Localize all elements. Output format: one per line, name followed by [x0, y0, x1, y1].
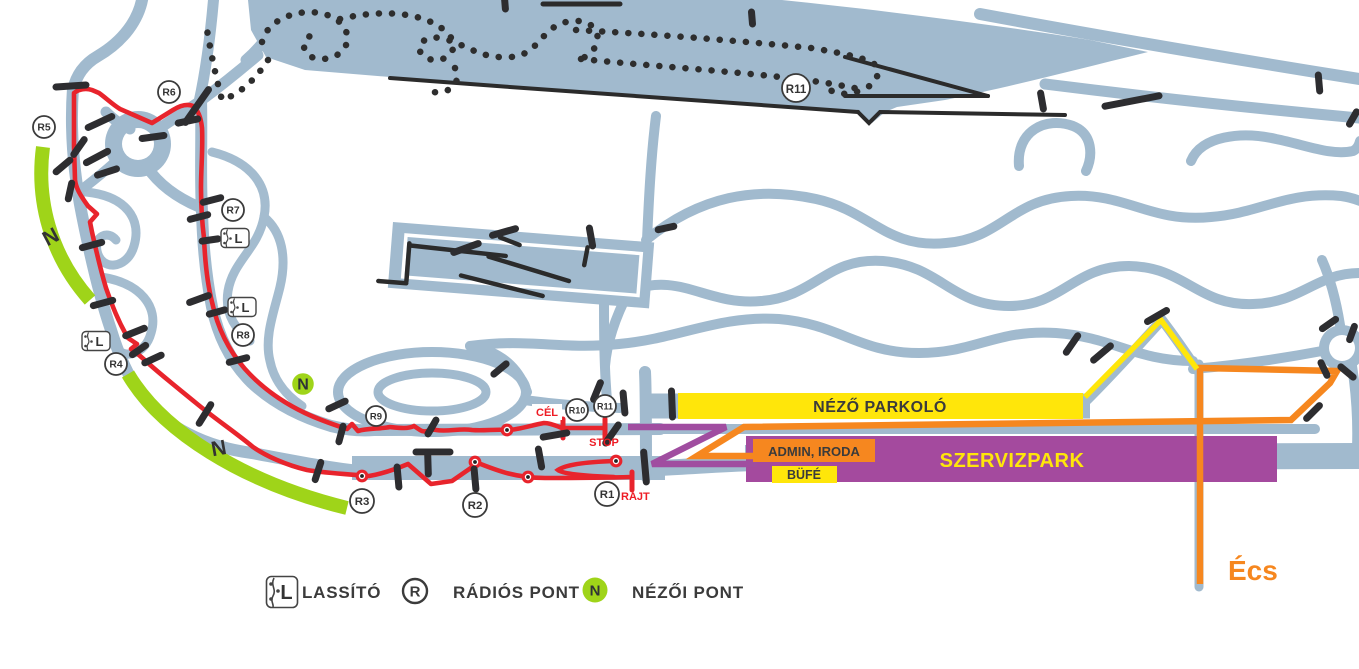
barrier-dash [202, 239, 218, 241]
barrier-dash [474, 469, 476, 489]
stage-map-canvas: R1 R2 R3 R4 R5 R6 R7 R8 R9 R10 [0, 0, 1359, 669]
lassito-marker: L [221, 229, 249, 248]
svg-text:R7: R7 [226, 206, 240, 217]
barrier-dash [428, 454, 429, 474]
barrier-dash [752, 12, 753, 24]
svg-text:R1: R1 [600, 489, 615, 501]
radio-point-marker-r10: R10 [566, 399, 588, 421]
barrier-dash [339, 426, 343, 441]
bufe-label: BÜFÉ [787, 467, 821, 482]
barrier-dash [397, 467, 399, 487]
svg-text:R10: R10 [569, 406, 586, 416]
legend: L LASSÍTÓ R RÁDIÓS PONT N NÉZŐI PONT [267, 577, 744, 608]
barrier-dash [658, 226, 674, 229]
radio-point-marker-r6: R6 [158, 81, 180, 103]
radio-point-marker-r7: R7 [222, 199, 244, 221]
radio-point-marker-r11: R11 [594, 395, 616, 417]
lassito-marker: L [82, 332, 110, 351]
barrier-dash [543, 433, 567, 437]
svg-text:N: N [297, 377, 309, 394]
barrier-dash [56, 160, 70, 172]
svg-text:L: L [242, 300, 250, 315]
paddock-structure [378, 221, 654, 308]
barrier-dash [1318, 75, 1319, 91]
barrier-dash [86, 151, 107, 162]
barrier-dash [56, 85, 86, 87]
barrier-dash [589, 228, 592, 246]
svg-text:L: L [280, 582, 292, 604]
radio-point-icon: R [403, 579, 427, 603]
svg-text:R9: R9 [370, 411, 382, 422]
barrier-dash [88, 117, 112, 128]
svg-text:R3: R3 [355, 496, 370, 508]
svg-text:R5: R5 [37, 123, 51, 134]
barrier-dash [145, 355, 161, 363]
radio-point-marker-r8: R8 [232, 324, 254, 346]
svg-text:R4: R4 [109, 360, 123, 371]
svg-text:R11: R11 [786, 84, 807, 96]
spectator-strip-south [128, 374, 347, 508]
legend-item-radio: R RÁDIÓS PONT [403, 579, 580, 603]
radio-point-marker-r11: R11 [782, 74, 810, 102]
barrier-dash [1094, 346, 1111, 360]
svg-text:R8: R8 [236, 331, 250, 342]
barrier-dash [672, 391, 673, 417]
barrier-dash [126, 328, 145, 335]
nezoi-point-icon: N [583, 578, 608, 603]
nezoi-point-marker: N [291, 372, 315, 396]
svg-text:L: L [235, 231, 243, 246]
svg-text:R11: R11 [597, 402, 613, 412]
legend-radio-label: RÁDIÓS PONT [453, 583, 580, 602]
barrier-dash [203, 198, 220, 203]
spectator-strip-letter: N [209, 436, 228, 461]
radio-point-marker-r5: R5 [33, 116, 55, 138]
svg-text:R2: R2 [468, 500, 483, 512]
rajt-label: RAJT [621, 491, 650, 503]
stop-label: STOP [589, 437, 619, 449]
nezo-parkolo-label: NÉZŐ PARKOLÓ [813, 397, 947, 416]
cel-label: CÉL [536, 406, 558, 419]
legend-item-lassito: L LASSÍTÓ [267, 577, 382, 608]
barrier-dash [68, 183, 71, 199]
barrier-dash [142, 136, 164, 139]
barrier-dash [190, 215, 207, 220]
legend-item-nezoi: N NÉZŐI PONT [583, 578, 744, 603]
road-network [72, 0, 1359, 587]
barrier-dash [1041, 93, 1044, 109]
lassito-marker: L [228, 298, 256, 317]
szervizpark-label: SZERVIZPARK [940, 450, 1085, 472]
svg-text:R6: R6 [162, 88, 176, 99]
barrier-dash [229, 358, 246, 363]
barrier-dash [505, 0, 506, 9]
svg-text:N: N [590, 583, 601, 600]
barrier-dash [538, 449, 541, 467]
svg-text:L: L [96, 334, 104, 349]
radio-point-marker-r9: R9 [366, 406, 386, 426]
legend-lassito-label: LASSÍTÓ [302, 583, 381, 602]
barrier-dash [209, 310, 224, 314]
svg-text:R: R [410, 584, 421, 601]
radio-point-marker-r2: R2 [463, 493, 487, 517]
barrier-dash [1350, 326, 1355, 339]
radio-point-marker-r4: R4 [105, 353, 127, 375]
admin-iroda-label: ADMIN, IRODA [768, 444, 860, 459]
barrier-dash [178, 119, 198, 123]
barrier-dash [644, 452, 647, 482]
rally-stage-map: R1 R2 R3 R4 R5 R6 R7 R8 R9 R10 [0, 0, 1359, 669]
radio-point-marker-r3: R3 [350, 489, 374, 513]
radio-point-marker-r1: R1 [595, 482, 619, 506]
barrier-dash [623, 393, 625, 413]
lassito-icon: L [267, 577, 298, 608]
ecs-destination-label: Écs [1228, 555, 1278, 586]
legend-nezoi-label: NÉZŐI PONT [632, 583, 744, 602]
